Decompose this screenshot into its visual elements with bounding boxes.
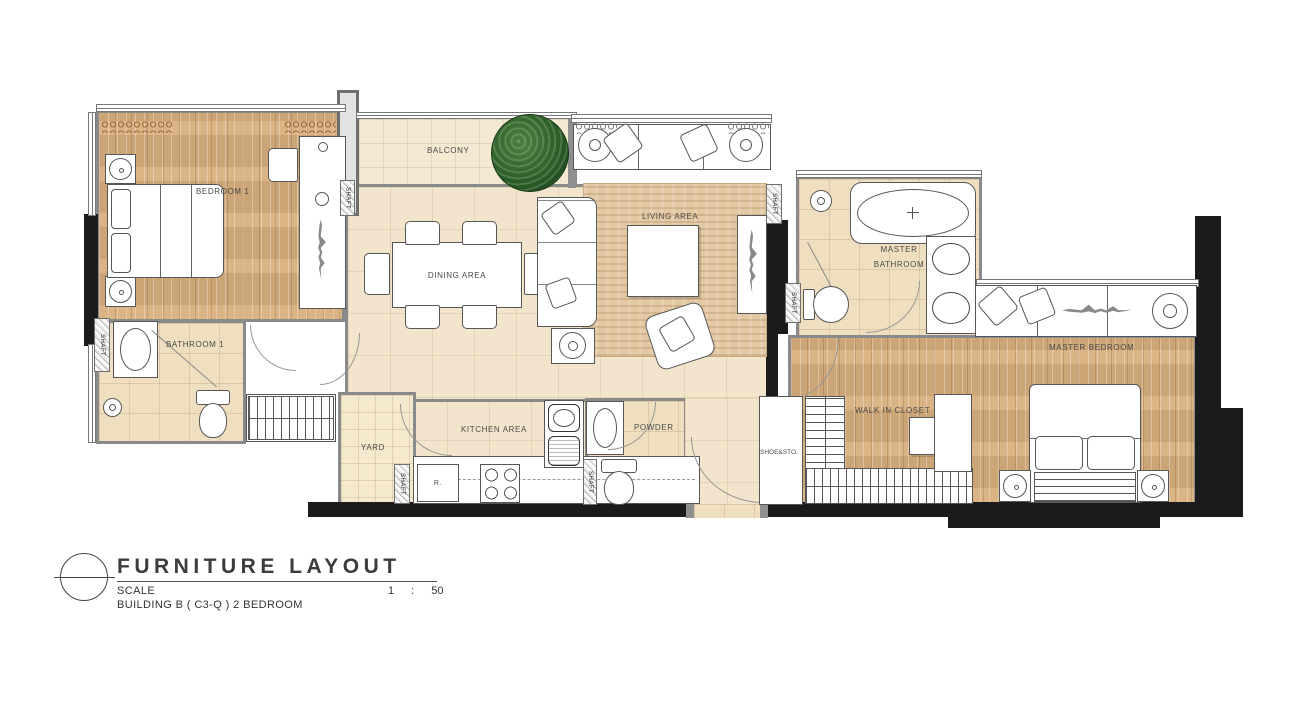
shaft-powder: SHAFT — [583, 459, 597, 505]
shaft-label: SHAFT — [99, 334, 105, 356]
desk-lamp-small — [318, 142, 328, 152]
shoe-storage-label: SHOE&STO. — [760, 449, 798, 456]
shaft-label: SHAFT — [399, 473, 405, 495]
door-bathroom1 — [250, 325, 296, 371]
dining-chair-3 — [405, 305, 440, 329]
dining-chair-2 — [462, 221, 497, 245]
dining-chair-5 — [364, 253, 390, 295]
pillow-bedroom1-a — [111, 189, 131, 229]
desk-chair-bedroom1 — [268, 148, 298, 182]
shaft-bathroom1: SHAFT — [94, 318, 110, 372]
refrigerator-label: R. — [434, 480, 442, 487]
balcony-label: BALCONY — [427, 146, 469, 155]
curtain-bedroom1-right — [284, 120, 336, 133]
dining-chair-1 — [405, 221, 440, 245]
walk-in-closet-label: WALK IN CLOSET — [855, 406, 930, 415]
refrigerator: R. — [417, 464, 459, 502]
section-symbol-line — [54, 577, 115, 578]
yard-label: YARD — [361, 443, 385, 452]
lamp-side-table — [559, 332, 586, 359]
scale-value: 1 : 50 — [388, 585, 444, 597]
living-area-label: LIVING AREA — [642, 212, 698, 221]
closet-rail-bedroom1 — [248, 396, 334, 440]
shaft-master-bath-top: SHAFT — [766, 184, 782, 224]
wall-bottom-right — [762, 502, 1243, 517]
bedroom1-label: BEDROOM 1 — [196, 187, 249, 196]
shower-head-master — [810, 190, 832, 212]
wardrobe-desk-bedroom1 — [299, 136, 346, 309]
shaft-master-bath-bottom: SHAFT — [785, 283, 801, 323]
building-line: BUILDING B ( C3-Q ) 2 BEDROOM — [117, 599, 303, 611]
powder-label: POWDER — [634, 423, 674, 432]
shaft-label: SHAFT — [771, 193, 777, 215]
closet-cabinet-right — [934, 394, 972, 472]
lamp-master-bench — [1152, 293, 1188, 329]
master-bathroom-label-line1: MASTER — [852, 242, 946, 257]
plant-balcony — [491, 114, 569, 192]
kitchen-sink-inner-1 — [553, 409, 575, 427]
dining-area-label: DINING AREA — [428, 271, 486, 280]
bathroom1-label: BATHROOM 1 — [166, 340, 224, 349]
shaft-label: SHAFT — [345, 187, 351, 209]
blanket-master — [1034, 472, 1136, 502]
window-bedroom1-left — [88, 112, 96, 216]
coffee-table — [627, 225, 699, 297]
master-bathroom-label: MASTER BATHROOM — [852, 242, 946, 272]
drawing-title: FURNITURE LAYOUT — [117, 555, 401, 579]
shaft-label: SHAFT — [587, 471, 593, 493]
shaft-label: SHAFT — [790, 292, 796, 314]
entry-threshold — [694, 504, 760, 518]
basin-bathroom1-corner — [103, 398, 122, 417]
nightstand-bedroom1-top — [105, 154, 136, 184]
window-master-bath-top — [796, 170, 982, 178]
wall-bottom-step — [948, 517, 1160, 528]
window-bedroom1-top — [96, 104, 346, 112]
toilet-master — [803, 286, 849, 323]
nightstand-master-right — [1137, 470, 1169, 502]
round-table-living-right — [729, 128, 763, 162]
kitchen-area-label: KITCHEN AREA — [461, 425, 527, 434]
nightstand-master-left — [999, 470, 1031, 502]
closet-rack-bottom — [805, 468, 973, 504]
sink-bathroom1 — [120, 328, 151, 371]
kitchen-counter-line — [418, 479, 695, 480]
toilet-powder — [601, 459, 637, 506]
pillow-master-b — [1087, 436, 1135, 470]
master-bathroom-label-line2: BATHROOM — [852, 257, 946, 272]
master-bedroom-label: MASTER BEDROOM — [1049, 343, 1134, 352]
sink-master-2 — [932, 292, 970, 324]
desk-lamp-large — [315, 192, 329, 206]
nightstand-bedroom1-bottom — [105, 276, 136, 307]
kitchen-sink-basin-2 — [548, 436, 580, 466]
bathtub — [850, 182, 976, 244]
wall-right-lower — [1195, 408, 1243, 504]
kitchen-sink-basin-1 — [548, 404, 580, 432]
wall-entry-divider — [766, 334, 778, 400]
wall-right-upper — [1195, 216, 1221, 412]
scale-label: SCALE — [117, 585, 155, 597]
curtain-bedroom1-left — [101, 120, 173, 133]
toilet-bathroom1 — [196, 390, 230, 439]
shaft-balcony: SHAFT — [340, 180, 355, 216]
pillow-master-a — [1035, 436, 1083, 470]
closet-rack-left — [805, 396, 845, 472]
bathtub-inner — [857, 189, 969, 237]
shaft-yard: SHAFT — [394, 464, 410, 504]
pillow-bedroom1-b — [111, 233, 131, 273]
title-underline — [117, 581, 437, 582]
floor-plan: DINING AREA R. — [0, 0, 1304, 724]
dining-table: DINING AREA — [392, 242, 522, 308]
stove — [480, 464, 520, 503]
dining-chair-4 — [462, 305, 497, 329]
